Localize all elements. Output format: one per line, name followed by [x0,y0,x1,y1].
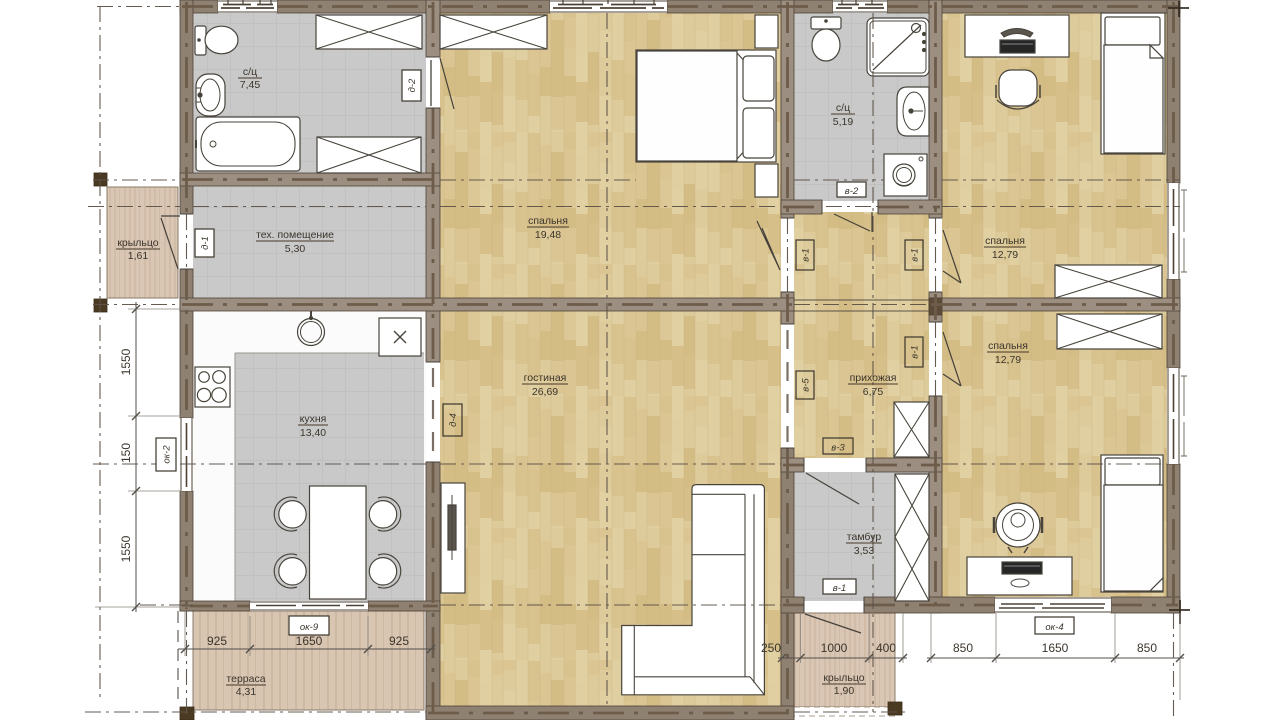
svg-text:26,69: 26,69 [532,386,558,398]
svg-text:с/ц: с/ц [243,66,257,78]
svg-text:крыльцо: крыльцо [823,672,864,684]
svg-text:д-4: д-4 [448,413,459,427]
svg-text:в-1: в-1 [910,248,921,261]
svg-text:5,30: 5,30 [285,243,306,255]
svg-text:850: 850 [953,641,973,655]
svg-text:1550: 1550 [119,348,133,375]
svg-text:в-3: в-3 [831,443,845,454]
svg-text:терраса: терраса [226,673,265,685]
svg-text:спальня: спальня [988,340,1028,352]
svg-text:3,53: 3,53 [854,545,875,557]
svg-text:в-1: в-1 [910,345,921,358]
svg-text:12,79: 12,79 [992,249,1018,261]
svg-text:тамбур: тамбур [847,531,882,543]
svg-text:400: 400 [876,641,896,655]
svg-text:850: 850 [1137,641,1157,655]
svg-text:прихожая: прихожая [850,372,897,384]
svg-text:1,61: 1,61 [128,250,149,262]
svg-text:1650: 1650 [296,634,323,648]
svg-text:1000: 1000 [821,641,848,655]
svg-text:ок-2: ок-2 [162,445,173,464]
svg-text:в-1: в-1 [833,583,846,594]
svg-text:12,79: 12,79 [995,354,1021,366]
svg-text:в-1: в-1 [801,248,812,261]
svg-text:1,90: 1,90 [834,685,855,697]
svg-text:тех. помещение: тех. помещение [256,229,334,241]
svg-text:19,48: 19,48 [535,229,561,241]
svg-text:ок-4: ок-4 [1045,622,1063,633]
svg-text:спальня: спальня [528,215,568,227]
svg-text:1650: 1650 [1042,641,1069,655]
svg-text:гостиная: гостиная [524,372,567,384]
svg-text:д-1: д-1 [200,236,211,250]
svg-text:5,19: 5,19 [833,116,854,128]
svg-text:д-2: д-2 [407,78,418,92]
svg-text:кухня: кухня [300,413,327,425]
svg-text:250: 250 [761,641,781,655]
svg-text:13,40: 13,40 [300,427,326,439]
svg-text:1550: 1550 [119,535,133,562]
svg-text:спальня: спальня [985,235,1025,247]
svg-text:7,45: 7,45 [240,79,261,91]
svg-text:4,31: 4,31 [236,686,257,698]
svg-text:6,75: 6,75 [863,386,884,398]
svg-text:в-2: в-2 [845,186,859,197]
svg-text:в-5: в-5 [801,378,812,392]
svg-text:150: 150 [119,443,133,463]
svg-text:крыльцо: крыльцо [117,237,158,249]
svg-text:925: 925 [389,634,409,648]
svg-text:925: 925 [207,634,227,648]
svg-text:ок-9: ок-9 [300,622,319,633]
svg-text:с/ц: с/ц [836,102,850,114]
